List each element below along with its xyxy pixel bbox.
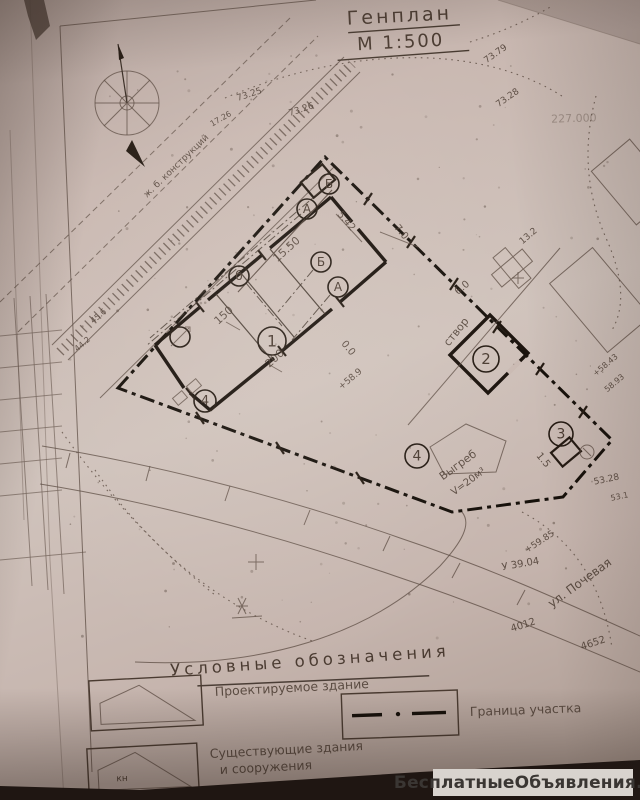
speckle-dot — [606, 161, 608, 163]
watermark-badge: БесплатныеОбъявления.рф — [433, 769, 633, 796]
marker-label: Б — [325, 177, 333, 191]
speckle-dot — [126, 227, 129, 230]
elevation-label: 227.000 — [551, 111, 597, 126]
legend-heading: Условные обозначения — [170, 641, 451, 679]
speckle-dot — [287, 244, 290, 247]
dimension-label: 5.42 — [335, 209, 358, 233]
speckle-dot — [425, 115, 428, 118]
speckle-dot — [265, 313, 266, 314]
speckle-dot — [116, 309, 119, 312]
contour-lines — [62, 6, 621, 648]
speckle-dot — [408, 593, 411, 596]
marker-label: 1 — [267, 331, 277, 350]
speckle-dot — [387, 354, 389, 356]
sight-line-label: створ — [441, 315, 472, 349]
speckle-dot — [335, 521, 338, 524]
speckle-dot — [490, 288, 492, 290]
speckle-dot — [453, 601, 454, 602]
speckle-dot — [250, 99, 252, 101]
street-road — [40, 446, 640, 672]
speckle-dot — [321, 421, 323, 423]
elevation-label: 44.2 — [73, 335, 92, 353]
speckle-dot — [200, 302, 203, 305]
speckle-dot — [230, 148, 233, 151]
speckle-dot — [410, 447, 411, 448]
legend-symbol-kn-text: кн — [116, 774, 128, 785]
speckle-dot — [462, 249, 464, 251]
speckle-dot — [417, 178, 420, 181]
speckle-dot — [438, 232, 440, 234]
speckle-dot — [470, 378, 473, 381]
dark-corner-mark — [24, 0, 50, 40]
dimension-labels: 15.501502005.427.06.01.5 — [212, 209, 553, 470]
speckle-dot — [413, 274, 415, 276]
speckle-dot — [341, 141, 344, 144]
speckle-dot — [510, 65, 512, 67]
plan-scale: М 1:500 — [357, 30, 445, 56]
speckle-dot — [439, 167, 440, 168]
existing-buildings — [484, 139, 640, 352]
frame-top — [60, 0, 316, 26]
elevation-label: 17.26 — [209, 109, 233, 128]
speckle-dot — [243, 257, 244, 258]
speckle-dot — [357, 547, 360, 550]
speckle-dot — [177, 70, 179, 72]
speckle-dot — [200, 417, 201, 418]
marker-label: Б — [317, 255, 325, 269]
speckle-dot — [250, 570, 253, 573]
speckle-dot — [275, 343, 277, 345]
elevation-label: +59.85 — [523, 529, 556, 556]
speckle-dot — [585, 168, 586, 169]
speckle-dot — [118, 210, 120, 212]
speckle-dot — [204, 302, 207, 305]
elevation-label: 73.28 — [494, 87, 521, 110]
speckle-dot — [356, 201, 357, 202]
speckle-dot — [292, 314, 295, 317]
speckle-dot — [171, 240, 172, 241]
speckle-dot — [315, 54, 317, 56]
speckle-dot — [513, 364, 514, 365]
speckle-dot — [525, 548, 528, 551]
marker-circles: 12344АБбАБ — [194, 174, 573, 468]
speckle-dot — [178, 242, 180, 244]
speckle-dot — [227, 279, 229, 281]
elevation-label: 73.26 — [288, 101, 316, 119]
speckle-dot — [154, 278, 155, 279]
legend-label-existing-2: и сооружения — [219, 757, 312, 777]
elevation-label: 73.25 — [236, 86, 264, 103]
speckle-dot — [484, 205, 486, 207]
sight-line — [408, 248, 560, 425]
speckle-dot — [173, 569, 175, 571]
speckle-dot — [268, 73, 270, 75]
watermark-text: БесплатныеОбъявления.рф — [394, 773, 640, 793]
street-name-label: ул. Почевая — [545, 555, 614, 610]
elevation-label: +58.9 — [337, 367, 365, 393]
speckle-dot — [164, 590, 167, 593]
marker-label: 3 — [557, 427, 566, 443]
speckle-dot — [306, 490, 308, 492]
paper-edge-line — [30, 0, 64, 800]
speckle-dot — [418, 325, 420, 327]
speckle-dot — [342, 502, 345, 505]
speckle-dot — [375, 434, 376, 435]
elevation-label: +58.43 — [591, 352, 619, 378]
speckle-dot — [289, 101, 291, 103]
speckle-dot — [463, 218, 465, 220]
speckle-dot — [272, 207, 274, 209]
speckle-dot — [392, 248, 394, 250]
marker-label: б — [235, 269, 242, 283]
speckle-dot — [391, 73, 393, 75]
speckle-dot — [493, 124, 495, 126]
speckle-dot — [185, 437, 187, 439]
speckle-dot — [463, 177, 465, 179]
speckle-dot — [502, 487, 505, 490]
speckle-dot — [329, 432, 331, 434]
speckle-dot — [344, 542, 346, 544]
speckle-dot — [406, 505, 408, 507]
speckle-dot — [505, 107, 506, 108]
speckle-dot — [324, 315, 326, 317]
speckle-dot — [320, 563, 323, 566]
speckle-dot — [576, 374, 578, 376]
speckle-dot — [186, 206, 188, 208]
speckle-dot — [553, 522, 556, 525]
speckle-dot — [498, 187, 500, 189]
speckle-dot — [172, 562, 175, 565]
elevation-label: 0.0 — [339, 339, 358, 358]
dimension-label: 1.5 — [534, 451, 553, 470]
speckle-dot — [247, 206, 249, 208]
speckle-dot — [479, 236, 481, 238]
ditch-curve — [135, 512, 466, 663]
speckle-dot — [265, 80, 267, 82]
marker-label: А — [334, 280, 343, 294]
speckle-dot — [329, 372, 331, 374]
elevation-label: 13.2 — [518, 226, 540, 247]
speckle-dot — [149, 469, 151, 471]
speckle-dot — [377, 503, 379, 505]
speckle-dot — [602, 372, 603, 373]
cross-shaped-building — [484, 240, 540, 296]
speckle-dot — [211, 459, 214, 462]
speckle-dot — [227, 292, 229, 294]
construction-note-label: ж. б. конструкций — [142, 133, 211, 200]
speckle-dot — [404, 549, 405, 550]
speckle-dot — [187, 89, 190, 92]
speckle-dot — [171, 154, 174, 157]
speckle-dot — [476, 234, 477, 235]
elevation-label: 4652 — [579, 634, 607, 652]
elevation-label: 58.93 — [603, 372, 626, 394]
speckle-dot — [554, 404, 556, 406]
speckle-dot — [516, 419, 518, 421]
speckle-dot — [81, 635, 84, 638]
speckle-dot — [603, 165, 605, 167]
dimension-label: 150 — [212, 304, 236, 328]
marker-label: 4 — [413, 449, 422, 465]
elevation-label: 45.6 — [89, 307, 108, 325]
speckle-dot — [539, 528, 542, 531]
speckle-dot — [329, 573, 330, 574]
elevation-label: У 39.04 — [501, 556, 540, 573]
speckle-dot — [290, 55, 292, 57]
speckle-dot — [299, 621, 301, 623]
speckle-dot — [169, 626, 170, 627]
elevation-label: 73.79 — [482, 43, 509, 66]
speckle-dot — [109, 95, 111, 97]
speckle-dot — [314, 244, 316, 246]
speckle-dot — [184, 78, 186, 80]
speckle-dot — [207, 280, 209, 282]
speckle-dot — [591, 481, 593, 483]
speckle-dot — [255, 279, 257, 281]
speckle-dot — [73, 516, 75, 518]
speckle-dot — [428, 393, 430, 395]
plan-title: Генплан — [346, 2, 452, 29]
speckle-dot — [555, 316, 557, 318]
speckle-dot — [139, 528, 141, 530]
speckle-dot — [342, 248, 345, 251]
speckle-dot — [333, 465, 336, 468]
legend-label-boundary: Граница участка — [470, 700, 582, 719]
speckle-dot — [187, 420, 190, 423]
title-block: Генплан М 1:500 — [335, 1, 470, 60]
speckle-dot — [479, 105, 482, 108]
speckle-dot — [320, 309, 323, 312]
speckle-dot — [471, 296, 473, 298]
speckle-dot — [365, 524, 367, 526]
speckle-dot — [70, 523, 72, 525]
speckle-dot — [505, 550, 507, 552]
marker-label: 2 — [481, 350, 491, 368]
survey-cross-icon — [248, 554, 264, 570]
speckle-dot — [272, 164, 275, 167]
speckle-dot — [282, 599, 283, 600]
speckle-dot — [222, 288, 224, 290]
speckle-dot — [239, 413, 241, 415]
speckle-dot — [216, 450, 218, 452]
speckle-dot — [575, 340, 577, 342]
speckle-dot — [336, 134, 339, 137]
speckle-dot — [97, 482, 99, 484]
speckle-dot — [69, 358, 72, 361]
speckle-dot — [477, 517, 479, 519]
site-plan-drawing: 12344АБбАБ 15.501502005.427.06.01.5 73.2… — [0, 0, 640, 800]
speckle-dot — [596, 237, 599, 240]
speckle-dot — [311, 602, 312, 603]
speckle-dot — [253, 214, 255, 216]
speckle-dot — [171, 315, 173, 317]
speckle-dot — [570, 237, 573, 240]
legend-symbol-projected-building — [89, 675, 203, 731]
photographed-site-plan: { "title": { "line1": "Генплан", "line2"… — [0, 0, 640, 800]
speckle-dot — [476, 138, 478, 140]
speckle-dot — [487, 524, 490, 527]
speckle-dot — [147, 309, 150, 312]
marker-label: 4 — [201, 394, 209, 409]
speckle-dot — [137, 89, 139, 91]
speckle-dot — [149, 330, 150, 331]
speckle-dot — [185, 286, 187, 288]
speckle-dot — [271, 230, 272, 231]
legend-label-projected: Проектируемое здание — [214, 676, 369, 699]
speckle-dot — [527, 602, 530, 605]
speckle-dot — [436, 637, 439, 640]
speckle-dot — [81, 325, 83, 327]
speckle-dot — [269, 123, 271, 125]
speckle-dot — [543, 307, 545, 309]
speckle-dot — [565, 567, 567, 569]
speckle-dot — [360, 126, 363, 129]
speckle-dot — [545, 395, 547, 397]
speckle-dot — [590, 365, 591, 366]
speckle-dot — [586, 388, 588, 390]
compass-rose-icon — [95, 44, 159, 167]
marker-label: А — [303, 202, 312, 216]
geo-point-icon — [236, 598, 248, 614]
speckle-dot — [350, 110, 353, 113]
elevation-label: 53.1 — [610, 490, 629, 503]
speckle-dot — [241, 596, 244, 599]
elevation-label: 53.28 — [593, 472, 621, 487]
speckle-dot — [303, 463, 305, 465]
legend-symbol-site-boundary — [341, 690, 458, 739]
speckle-dot — [587, 186, 590, 189]
speckle-dot — [186, 248, 189, 251]
frame-left — [60, 26, 92, 772]
speckle-dot — [235, 252, 237, 254]
